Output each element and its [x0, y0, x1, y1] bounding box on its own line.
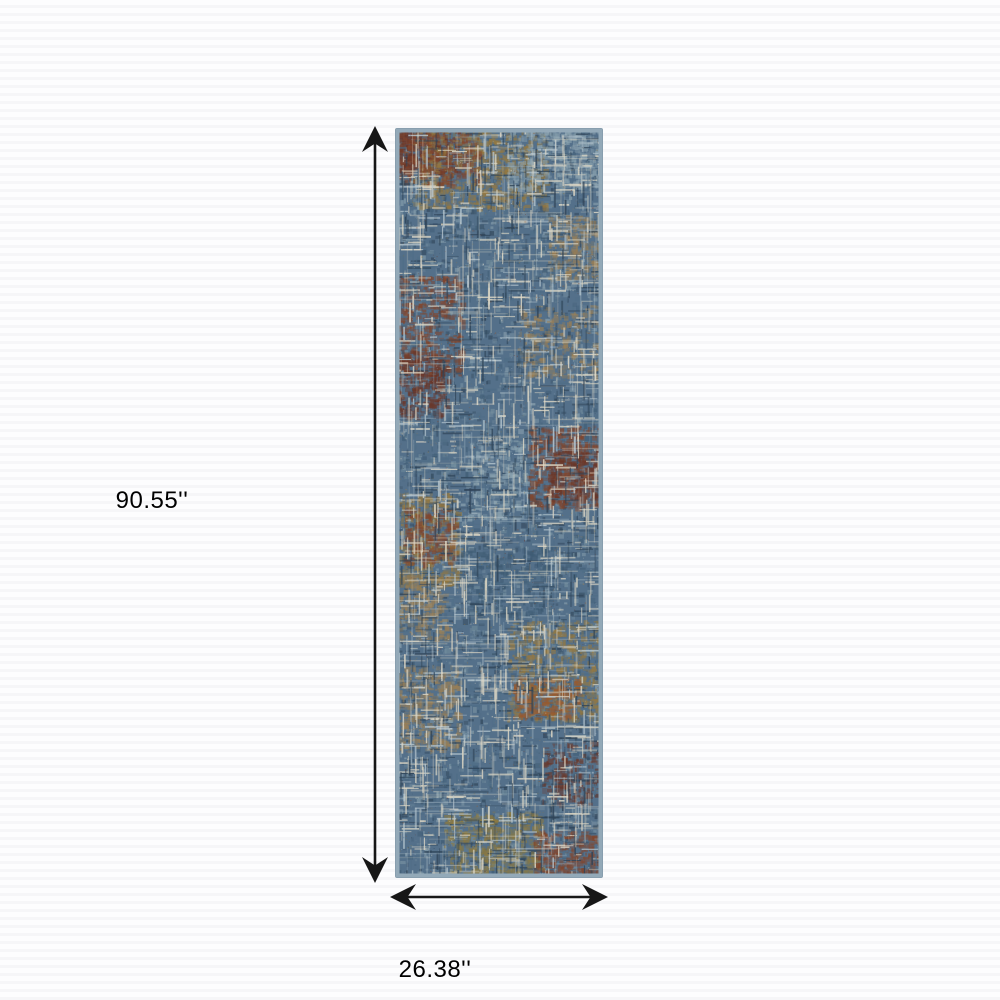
width-dimension-arrow: [390, 884, 608, 910]
rug-image: [395, 128, 603, 878]
height-dimension-label: 90.55'': [82, 487, 222, 515]
width-dimension-label: 26.38'': [365, 956, 505, 984]
product-dimension-diagram: 90.55'' 26.38'': [0, 0, 1000, 1000]
height-dimension-arrow: [362, 126, 388, 883]
